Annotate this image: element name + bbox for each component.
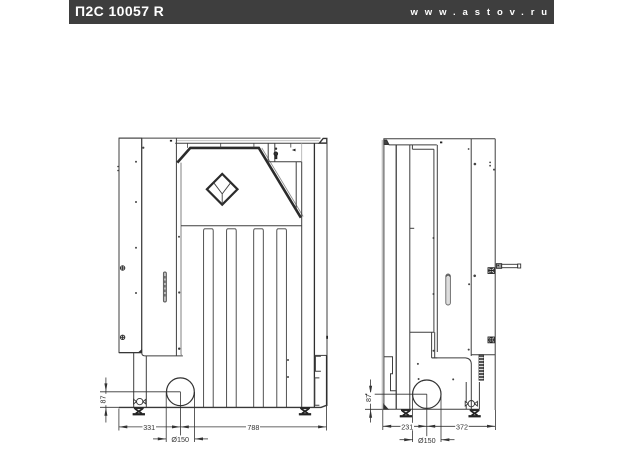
- svg-text:87: 87: [364, 394, 373, 402]
- svg-text:231: 231: [401, 422, 413, 431]
- svg-text:788: 788: [247, 423, 259, 432]
- svg-text:Ø150: Ø150: [418, 436, 436, 445]
- svg-text:331: 331: [143, 423, 155, 432]
- svg-text:372: 372: [456, 422, 468, 431]
- svg-text:Ø150: Ø150: [171, 435, 189, 444]
- svg-text:87: 87: [99, 396, 108, 404]
